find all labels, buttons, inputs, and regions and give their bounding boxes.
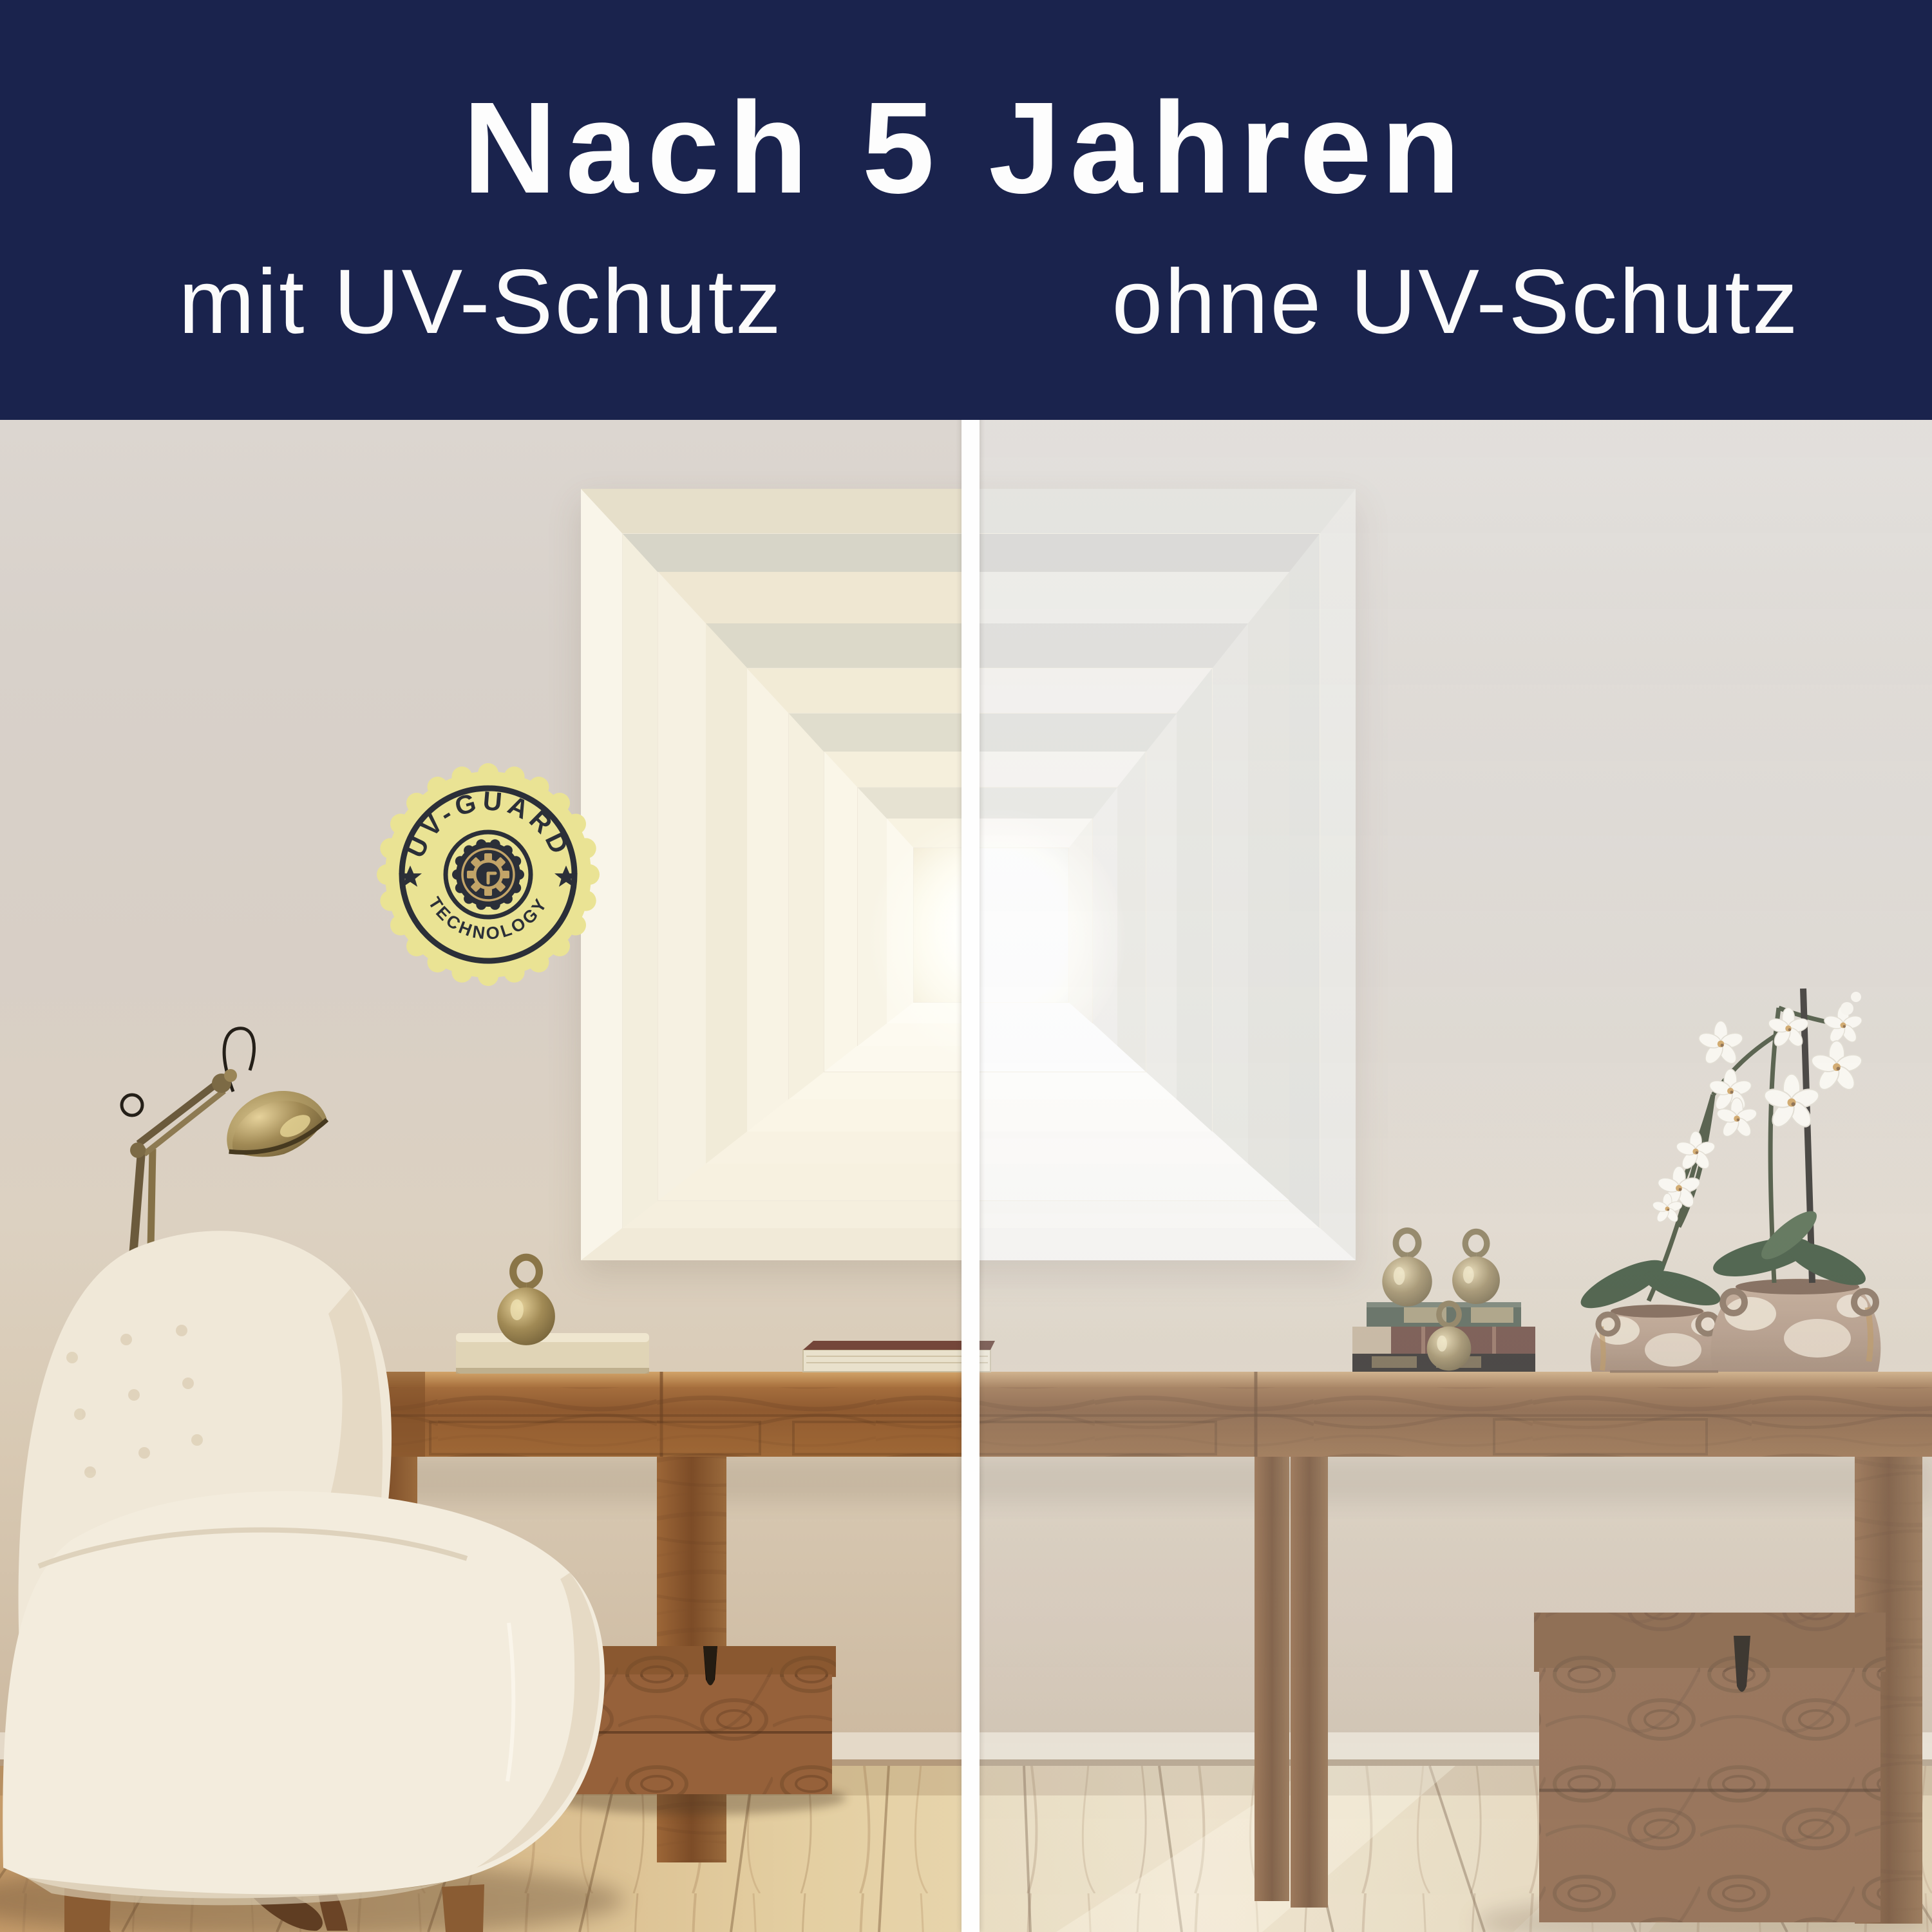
label-with-uv-protection: mit UV-Schutz [0,256,961,348]
orchid-plants [1575,989,1871,1317]
storage-chest-right [1534,1613,1886,1922]
product-comparison-image: UV-GUARD TECHNOLOGY [0,0,1932,1932]
orchid-flowers [1651,992,1864,1224]
brass-bell [497,1257,555,1345]
wooden-tray [456,1333,649,1374]
label-without-uv-protection: ohne UV-Schutz [980,256,1932,348]
headline-banner: Nach 5 Jahren mit UV-Schutz ohne UV-Schu… [0,0,1932,420]
split-divider [961,412,980,1932]
banner-title: Nach 5 Jahren [0,82,1932,213]
table-shadow [348,1457,1932,1502]
